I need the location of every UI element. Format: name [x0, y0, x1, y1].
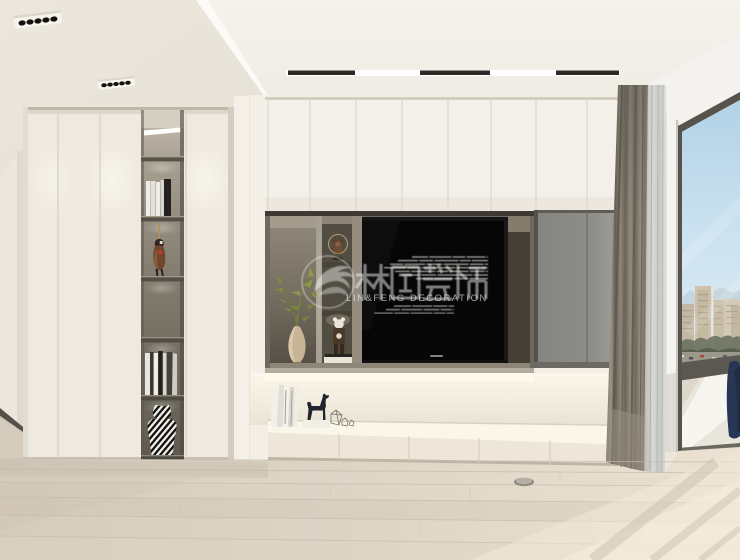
svg-text:LIN&FENG DECORATION: LIN&FENG DECORATION — [346, 292, 488, 303]
